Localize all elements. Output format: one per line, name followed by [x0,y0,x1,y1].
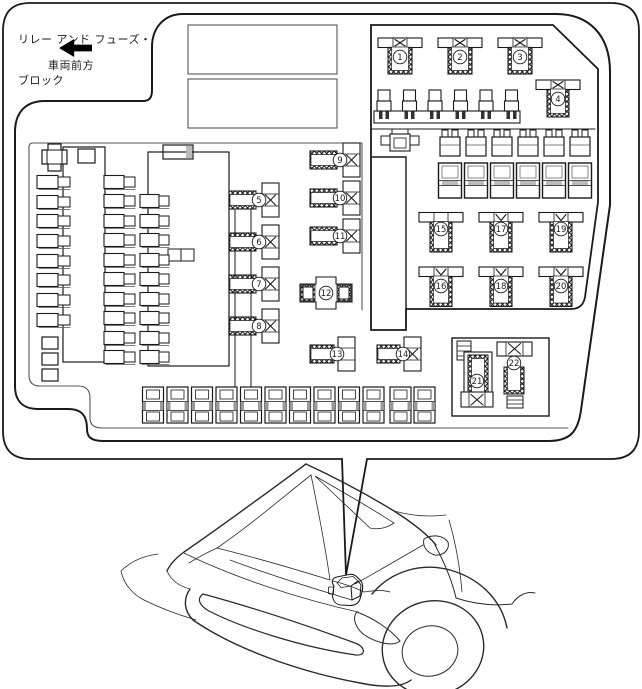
svg-text:1: 1 [397,53,402,63]
relay-symbol-21: 21 [461,352,493,407]
svg-text:2: 2 [457,53,462,63]
svg-text:18: 18 [496,282,507,292]
svg-text:16: 16 [436,282,447,292]
diagram-title-line1: リレー アンド フューズ・ [18,33,152,47]
svg-text:19: 19 [556,225,567,235]
svg-text:22: 22 [509,359,520,369]
svg-text:20: 20 [556,282,567,292]
svg-text:11: 11 [335,232,346,242]
svg-text:5: 5 [256,196,261,206]
diagram-title-line2: ブロック [18,74,152,88]
svg-text:3: 3 [517,53,522,63]
svg-text:17: 17 [496,225,507,235]
svg-text:15: 15 [436,225,447,235]
fuse-column-inner [140,195,169,365]
front-direction-label: 車両前方 [48,59,94,73]
svg-text:6: 6 [256,238,261,248]
svg-text:10: 10 [335,194,346,204]
vehicle-illustration [121,464,535,689]
svg-text:12: 12 [321,289,332,299]
svg-text:13: 13 [332,350,343,360]
fuse-box-location-highlight [329,574,363,605]
svg-text:9: 9 [337,156,342,166]
svg-text:8: 8 [256,322,261,332]
page: 12345678910111213141517191618202122 リレー … [0,0,642,689]
svg-text:4: 4 [555,95,560,105]
svg-text:21: 21 [472,377,483,387]
svg-text:7: 7 [256,280,261,290]
svg-text:14: 14 [398,350,409,360]
